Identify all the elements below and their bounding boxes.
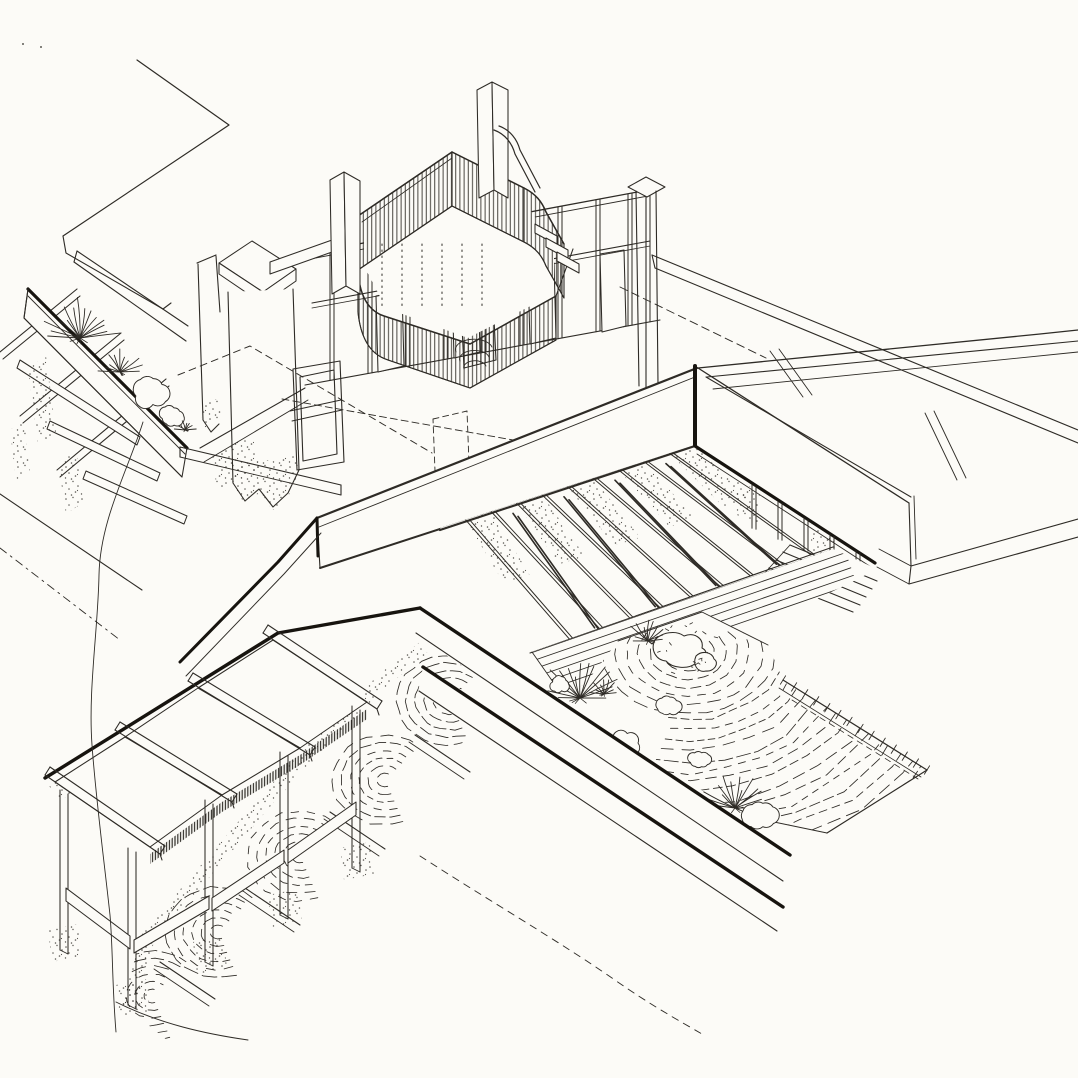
axonometric-drawing: Axonometric ink drawing — sunken courtya… (0, 0, 1078, 1078)
post-base-stipple (340, 842, 374, 880)
paper-speck (22, 43, 24, 45)
angle-post-face (492, 82, 508, 198)
post-base-stipple (116, 979, 150, 1017)
post-base-stipple (48, 924, 82, 962)
angle-post-face (344, 172, 360, 294)
angle-post-face (477, 82, 494, 198)
wall-opening (600, 250, 626, 332)
paper-speck (40, 46, 42, 48)
angle-post-face (330, 172, 346, 294)
rock-scatter-stroke (707, 652, 708, 653)
post-base-stipple (268, 889, 302, 927)
paper-sheet: Axonometric ink drawing — sunken courtya… (0, 0, 1078, 1078)
post-base-stipple (193, 936, 227, 974)
